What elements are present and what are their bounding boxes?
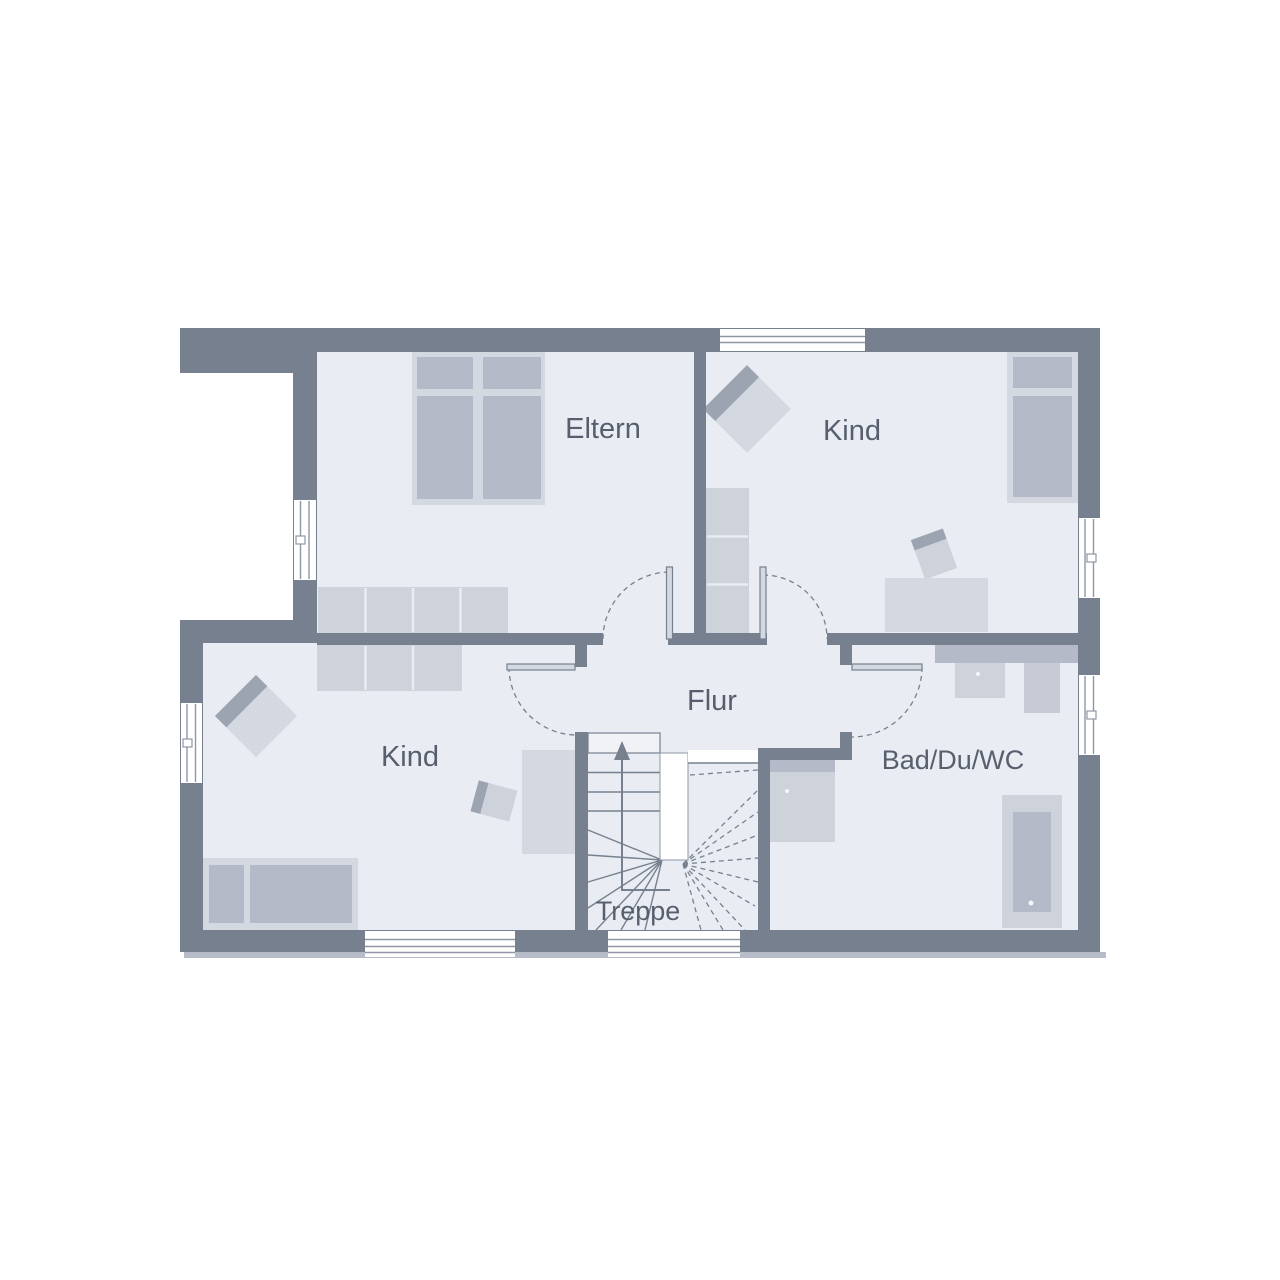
wall-exterior-top: [180, 328, 1100, 352]
window-right-kind: [1079, 518, 1100, 598]
wall-stub-kind-door: [575, 645, 587, 667]
wall-middle-left: [317, 633, 603, 645]
wall-flur-bad: [758, 748, 852, 760]
wardrobe: [317, 645, 462, 691]
wall-divider-eltern-kind: [694, 352, 706, 645]
desk: [885, 578, 988, 632]
wall-middle-center: [668, 633, 767, 645]
stair-upper-edge: [688, 750, 758, 763]
bed-mattress: [250, 865, 352, 923]
window-bottom-treppe: [608, 931, 740, 957]
window-left-kind: [181, 703, 202, 783]
shelf: [706, 488, 749, 633]
bed-pillow: [209, 865, 244, 923]
window-top: [720, 329, 865, 351]
wall-stair-left: [575, 732, 588, 930]
wall-exterior-right: [1078, 328, 1100, 952]
wall-stub-bad-door: [840, 645, 852, 665]
bed-pillow: [483, 357, 541, 389]
wall-exterior-step: [180, 620, 317, 643]
door-leaf: [852, 664, 922, 670]
stairwell-void: [660, 753, 688, 860]
room-label-eltern: Eltern: [565, 413, 641, 445]
washstand-counter: [935, 645, 1078, 663]
floor-plan-canvas: Eltern Kind Kind Flur Bad/Du/WC Treppe: [0, 0, 1280, 1280]
door-leaf: [760, 567, 766, 639]
bathtub-drain: [1029, 901, 1034, 906]
room-label-flur: Flur: [687, 685, 737, 717]
washbasin-drain: [976, 672, 980, 676]
wall-exterior-left-lower: [180, 643, 203, 952]
wall-exterior-left-upper: [293, 373, 317, 620]
window-right-bad: [1079, 675, 1100, 755]
bed-mattress: [1013, 396, 1072, 497]
door-leaf: [507, 664, 575, 670]
floor-plan-page: Eltern Kind Kind Flur Bad/Du/WC Treppe: [0, 0, 1280, 1280]
bed-pillow: [1013, 357, 1072, 388]
toilet-cistern: [768, 758, 835, 772]
room-label-kind-top: Kind: [823, 415, 881, 447]
washbasin: [955, 663, 1005, 698]
wall-top-left-block: [180, 352, 317, 373]
wall-stair-right: [758, 748, 770, 930]
window-left-eltern: [294, 500, 316, 580]
door-leaf: [667, 567, 673, 639]
bed-mattress: [417, 396, 473, 499]
wall-middle-right: [827, 633, 1078, 645]
room-label-treppe: Treppe: [596, 896, 681, 926]
bed-pillow: [417, 357, 473, 389]
bed-mattress: [483, 396, 541, 499]
desk: [522, 750, 575, 854]
room-label-kind-bottom: Kind: [381, 741, 439, 773]
shower: [1024, 663, 1060, 713]
room-label-bad: Bad/Du/WC: [882, 745, 1025, 775]
bathtub-basin: [1013, 812, 1051, 912]
window-bottom-kind: [365, 931, 515, 957]
toilet-drain: [785, 789, 789, 793]
